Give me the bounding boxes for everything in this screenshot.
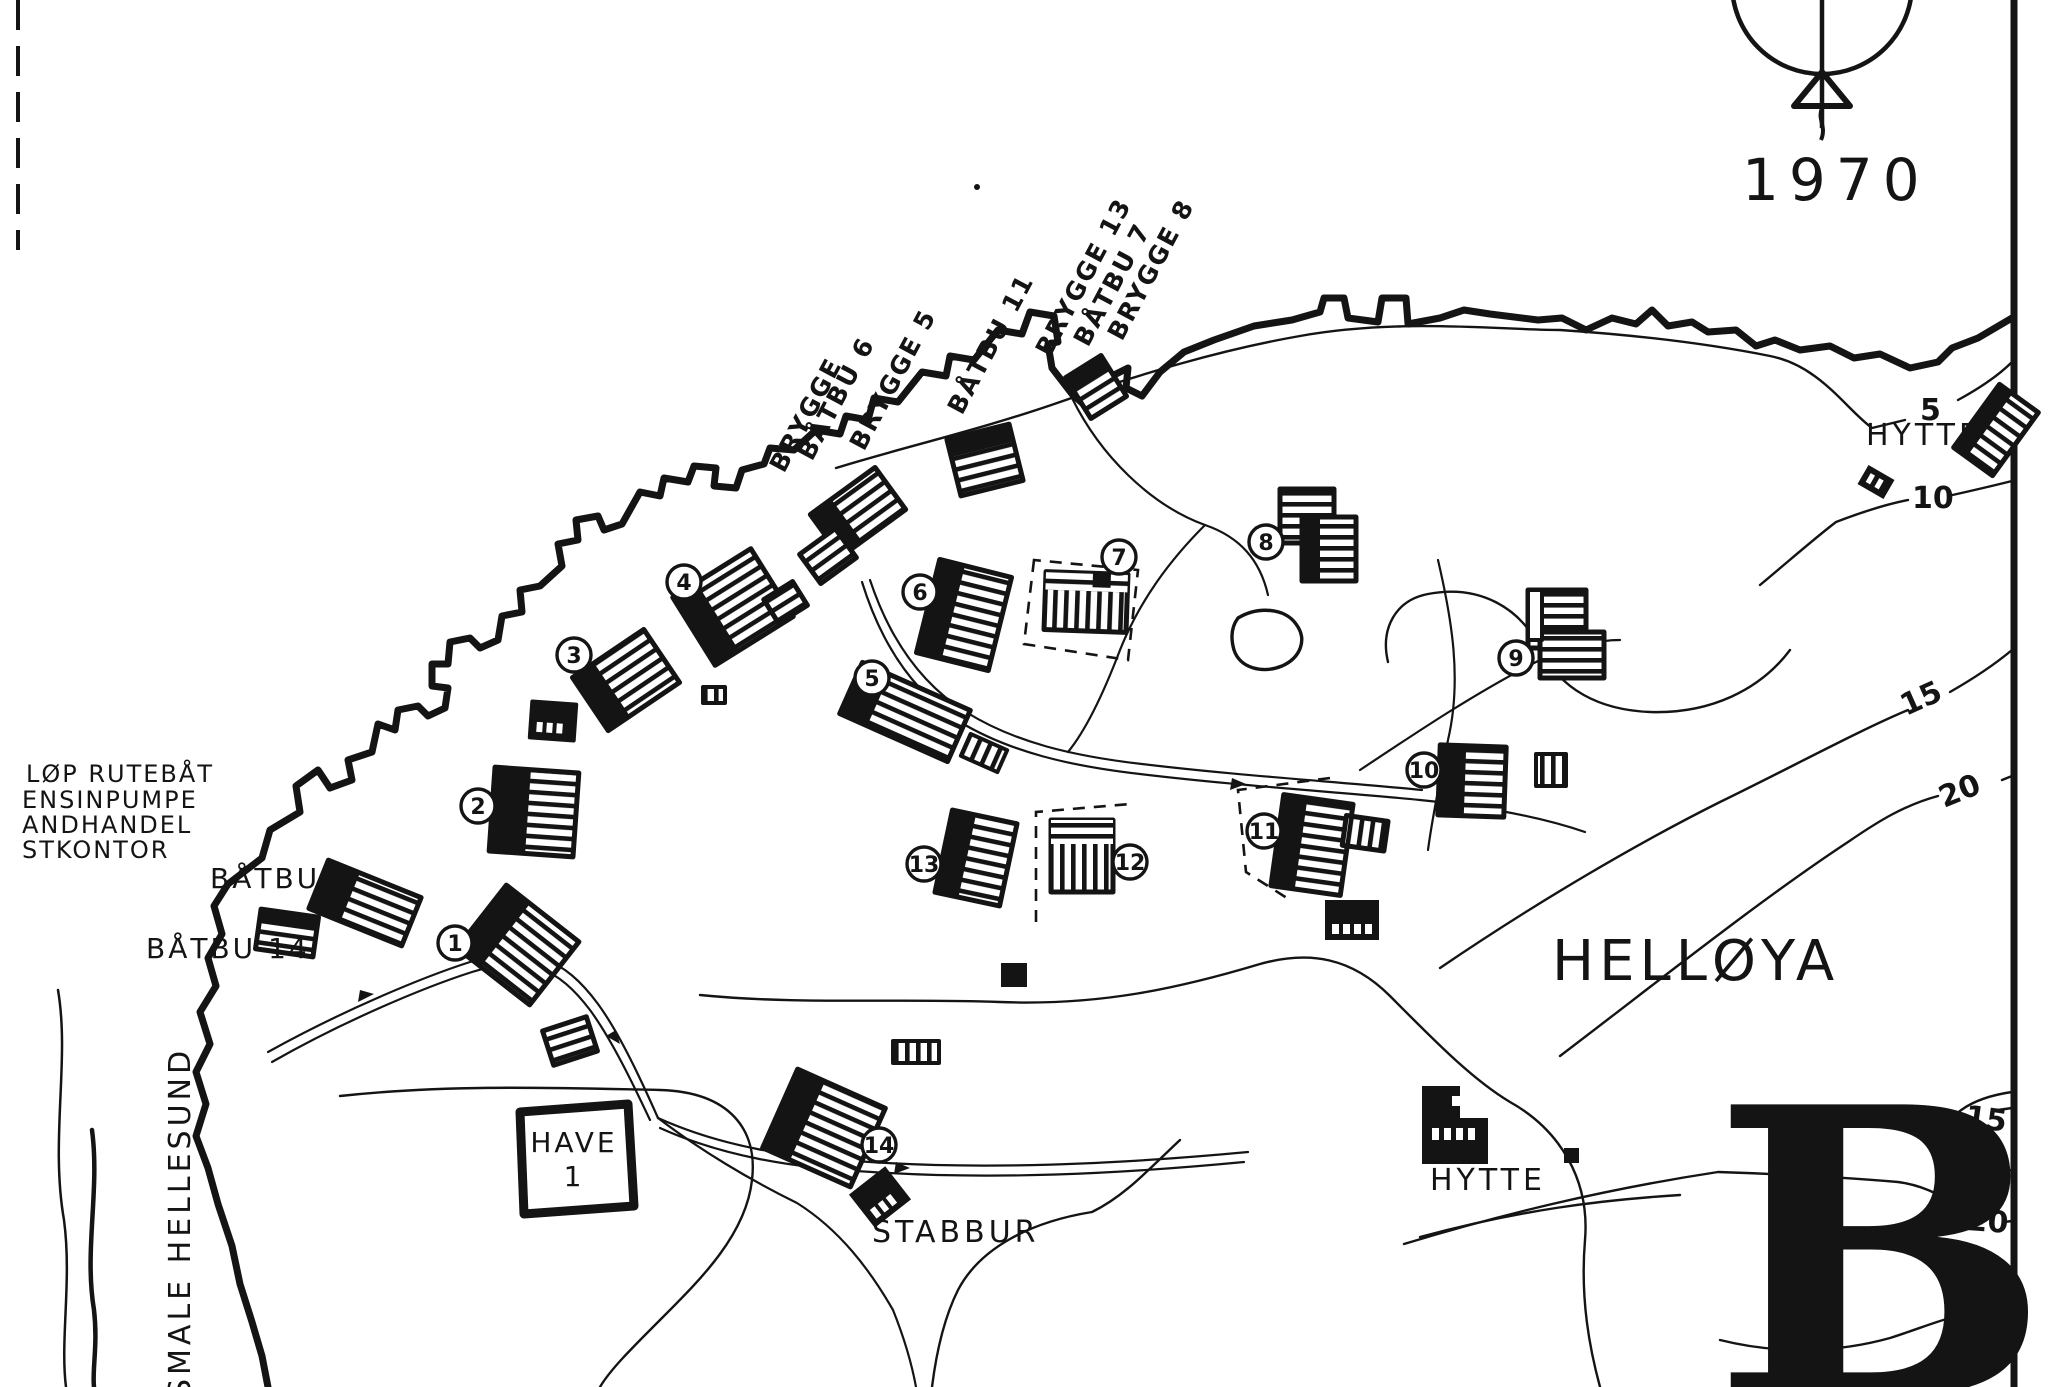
map-canvas: 1 2 3 4 5 6 7 8 9 10 11 12 13 14 LØP RUT… (0, 0, 2048, 1387)
batbu-14-label: BÅTBU 14 (146, 931, 310, 965)
compass-needle-tail (1821, 108, 1823, 140)
house-circle-5: 5 (855, 661, 889, 695)
contour-10m-a (1760, 500, 1908, 585)
island-name-label: HELLØYA (1552, 929, 1839, 994)
contour-hytte-south (1420, 1195, 1680, 1237)
house-number-10: 10 (1409, 759, 1440, 784)
contour-stabbur-loop (932, 1140, 1180, 1387)
contour-label-15-east: 15 (1895, 674, 1947, 723)
building-shed-south (893, 1041, 939, 1063)
channel-name-label: SMALE HELLESUND (163, 1047, 198, 1387)
house-circle-4: 4 (667, 565, 701, 599)
building-hytte-north-shed (1858, 465, 1895, 499)
services-line-1: LØP RUTEBÅT (26, 759, 214, 788)
building-house-7 (1044, 572, 1128, 633)
services-line-3: ANDHANDEL (22, 811, 192, 839)
house-number-1: 1 (447, 932, 462, 957)
building-house-1-annex (543, 1017, 598, 1065)
building-house-1 (457, 885, 579, 1005)
house-number-12: 12 (1115, 851, 1146, 876)
trail-arrow-2 (606, 1030, 620, 1044)
contour-label-5: 5 (1920, 393, 1941, 428)
house-circle-3: 3 (557, 638, 591, 672)
building-house-11-annex (1325, 900, 1379, 940)
contour-10m-b (1948, 481, 2012, 496)
house-circle-14: 14 (862, 1128, 896, 1162)
building-house-9 (1528, 590, 1604, 678)
house-circle-2: 2 (461, 789, 495, 823)
contour-15m-east-b (1950, 650, 2012, 692)
house-number-3: 3 (566, 644, 581, 669)
sound-water-line-2 (91, 1130, 96, 1387)
house-number-2: 2 (470, 795, 485, 820)
building-brygge-13 (1065, 356, 1126, 419)
building-house-11 (1271, 795, 1390, 901)
house-number-4: 4 (676, 571, 691, 596)
plate-letter: B (1712, 1021, 2048, 1387)
house-number-5: 5 (864, 667, 879, 692)
garden-plot-outline (520, 1104, 634, 1214)
house-circle-8: 8 (1249, 525, 1283, 559)
road-west-a (268, 954, 658, 1118)
building-house-13 (935, 810, 1017, 906)
contour-20m-east-a (1560, 796, 1938, 1056)
hytte-south-label: HYTTE (1430, 1163, 1546, 1198)
building-shed-dark (1001, 963, 1027, 987)
have-label-line1: HAVE (530, 1126, 617, 1159)
building-house-8 (1280, 489, 1356, 581)
offshore-dot (974, 184, 980, 190)
road-east-long-a (658, 1118, 1248, 1166)
services-line-2: ENSINPUMPE (22, 786, 198, 814)
house-circle-9: 9 (1499, 641, 1533, 675)
building-house-3-annex (530, 702, 576, 741)
house-circle-11: 11 (1247, 814, 1281, 848)
have-label-line2: 1 (564, 1160, 585, 1193)
building-dot-south (1564, 1148, 1579, 1163)
house-number-13: 13 (909, 853, 940, 878)
north-arrow (1732, 0, 1912, 140)
contour-label-10: 10 (1912, 481, 1954, 516)
house-circle-7: 7 (1102, 540, 1136, 574)
building-house-4 (673, 539, 809, 665)
survey-year-label: 1970 (1742, 146, 1930, 214)
services-line-4: STKONTOR (22, 836, 169, 864)
building-house-14 (763, 1069, 886, 1187)
house-circle-13: 13 (907, 847, 941, 881)
house-number-6: 6 (912, 581, 927, 606)
house-number-8: 8 (1258, 531, 1273, 556)
house-circle-6: 6 (903, 575, 937, 609)
house-number-11: 11 (1249, 820, 1280, 845)
batbu-11-label: BÅTBU 11 (942, 269, 1040, 419)
building-house-10 (1438, 745, 1506, 817)
stabbur-label: STABBUR (872, 1215, 1040, 1250)
contour-label-20-east: 20 (1934, 767, 1986, 815)
building-house-10-annex (1536, 754, 1566, 786)
house-number-9: 9 (1508, 647, 1523, 672)
batbu-1-label: BÅTBU 1 (210, 861, 353, 895)
house-number-14: 14 (864, 1134, 895, 1159)
building-house-6 (916, 559, 1011, 670)
building-house-5-annex (961, 734, 1007, 772)
house-circle-10: 10 (1407, 753, 1441, 787)
building-hut-small-a (703, 687, 725, 703)
sound-water-line-1 (58, 990, 67, 1387)
building-batbu-11 (947, 424, 1023, 496)
house-circle-1: 1 (438, 926, 472, 960)
house-circle-12: 12 (1113, 845, 1147, 879)
pond-outline (1232, 610, 1302, 669)
scanned-map-page: 1 2 3 4 5 6 7 8 9 10 11 12 13 14 LØP RUT… (0, 0, 2048, 1387)
building-house-12 (1051, 820, 1113, 892)
building-hytte-south (1422, 1086, 1488, 1164)
house-number-7: 7 (1111, 546, 1126, 571)
building-house-2 (489, 767, 579, 857)
